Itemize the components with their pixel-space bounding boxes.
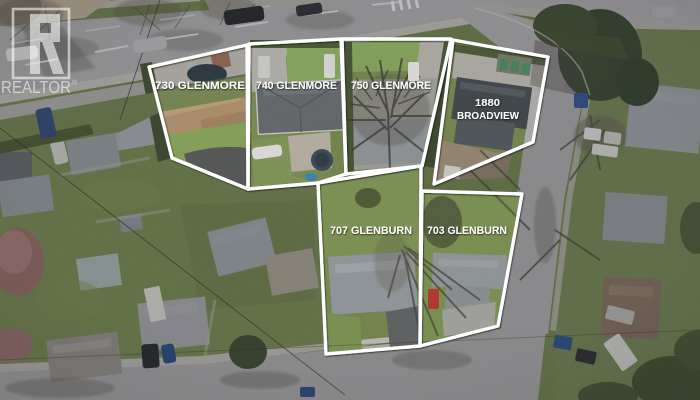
svg-text:1880: 1880 (475, 98, 500, 109)
svg-text:REALTOR: REALTOR (1, 77, 71, 97)
svg-text:BROADVIEW: BROADVIEW (457, 111, 519, 122)
svg-text:®: ® (72, 79, 78, 87)
svg-text:703 GLENBURN: 703 GLENBURN (427, 225, 507, 237)
svg-text:730 GLENMORE: 730 GLENMORE (155, 80, 245, 92)
svg-text:740 GLENMORE: 740 GLENMORE (256, 80, 337, 92)
svg-text:707 GLENBURN: 707 GLENBURN (330, 225, 412, 237)
svg-text:750 GLENMORE: 750 GLENMORE (351, 80, 431, 92)
